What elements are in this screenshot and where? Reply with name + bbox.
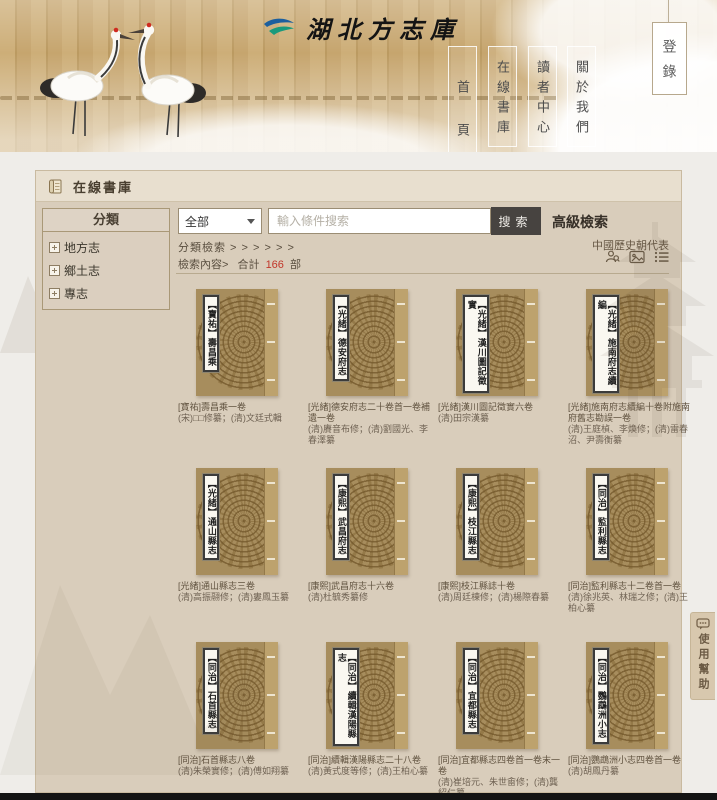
book-card[interactable]: 【同治】監利縣志 [同治]監利縣志十二卷首一卷 (清)徐兆英、林瑞之修；(清)王…: [568, 468, 696, 614]
online-library-panel: 在線書庫 分類 地方志 鄉土志 專志 全部 搜索 高級檢索 中國歷史朝代表 分類…: [35, 170, 682, 793]
binding-strip: [654, 642, 668, 749]
total-count: 166: [263, 259, 287, 271]
breadcrumb: 分類檢索 > > > > > >: [178, 239, 295, 255]
nav-reader-center[interactable]: 讀者中心: [528, 46, 557, 147]
book-authors: (清)徐兆英、林瑞之修；(清)王柏心纂: [568, 592, 696, 614]
sidebar-item-zhuanzhi[interactable]: 專志: [49, 285, 169, 302]
book-authors: (清)胡鳳丹纂: [568, 766, 696, 777]
sidebar-item-xiangtuzhi[interactable]: 鄉土志: [49, 262, 169, 279]
book-title[interactable]: [同治]宜都縣志四卷首一卷末一卷: [438, 755, 566, 777]
book-authors: (清)朱榮實修；(清)傅如翔纂: [178, 766, 306, 777]
book-authors: (清)周廷棟修；(清)楊際春纂: [438, 592, 566, 603]
sidebar-item-label: 專志: [64, 285, 88, 302]
book-cover[interactable]: 【同治】石首縣志: [196, 642, 278, 749]
result-prefix: 檢索內容>: [178, 259, 228, 271]
binding-strip: [524, 642, 538, 749]
book-cover[interactable]: 【同治】續輯漢陽縣志: [326, 642, 408, 749]
book-card[interactable]: 【光緒】施南府志續編 [光緒]施南府志續編十卷附施南府舊志勘誤一卷 (清)王庭楨…: [568, 289, 696, 446]
expand-plus-icon[interactable]: [49, 288, 60, 299]
book-spine-label: 【同治】鸚鵡洲小志: [593, 648, 609, 744]
book-spine-label: 【光緒】德安府志: [333, 295, 349, 381]
book-authors: (清)賡音布修；(清)劉國光、李春澤纂: [308, 424, 436, 446]
book-cover[interactable]: 【光緒】施南府志續編: [586, 289, 668, 396]
binding-strip: [394, 289, 408, 396]
advanced-search-link[interactable]: 高級檢索: [552, 212, 608, 232]
book-authors: (宋)□□修纂；(清)文廷式輯: [178, 413, 306, 424]
book-authors: (清)田宗漢纂: [438, 413, 566, 424]
binding-strip: [394, 642, 408, 749]
divider: [176, 273, 669, 274]
expand-plus-icon[interactable]: [49, 242, 60, 253]
book-spine-label: 【同治】宜都縣志: [463, 648, 479, 734]
book-spine-label: 【光緒】通山縣志: [203, 474, 219, 560]
total-unit: 部: [290, 259, 301, 271]
binding-strip: [654, 468, 668, 575]
book-authors: (清)高振翮修；(清)婁鳳玉纂: [178, 592, 306, 603]
book-card[interactable]: 【康熙】枝江縣志 [康熙]枝江縣誌十卷 (清)周廷棟修；(清)楊際春纂: [438, 468, 566, 603]
book-title[interactable]: [光緒]德安府志二十卷首一卷補遺一卷: [308, 402, 436, 424]
panel-title: 在線書庫: [73, 177, 133, 196]
login-hanging-line: [668, 0, 669, 22]
book-cover[interactable]: 【寶祐】壽昌乘: [196, 289, 278, 396]
sidebar-item-label: 地方志: [64, 239, 100, 256]
book-card[interactable]: 【同治】續輯漢陽縣志 [同治]續輯漢陽縣志二十八卷 (清)黃式度等修；(清)王柏…: [308, 642, 436, 777]
book-spine-label: 【寶祐】壽昌乘: [203, 295, 219, 372]
binding-strip: [264, 468, 278, 575]
chevron-down-icon: [247, 219, 255, 224]
book-card[interactable]: 【同治】宜都縣志 [同治]宜都縣志四卷首一卷末一卷 (清)崔培元、朱世畬修；(清…: [438, 642, 566, 799]
binding-strip: [394, 468, 408, 575]
book-card[interactable]: 【光緒】通山縣志 [光緒]通山縣志三卷 (清)高振翮修；(清)婁鳳玉纂: [178, 468, 306, 603]
book-cover[interactable]: 【同治】監利縣志: [586, 468, 668, 575]
nav-home[interactable]: 首頁: [448, 46, 477, 152]
sidebar-item-label: 鄉土志: [64, 262, 100, 279]
nav-about-us[interactable]: 關於我們: [567, 46, 596, 147]
site-title: 湖北方志庫: [306, 10, 461, 45]
book-spine-label: 【同治】續輯漢陽縣志: [333, 648, 359, 746]
nav-online-library[interactable]: 在線書庫: [488, 46, 517, 147]
view-options: [605, 249, 669, 264]
book-cover[interactable]: 【光緒】德安府志: [326, 289, 408, 396]
login-button[interactable]: 登錄: [652, 22, 687, 95]
book-authors: (清)杜毓秀纂修: [308, 592, 436, 603]
book-spine-label: 【同治】石首縣志: [203, 648, 219, 734]
footer-bar: [0, 793, 717, 800]
site-header: 湖北方志庫 首頁 在線書庫 讀者中心 關於我們 登錄: [0, 0, 717, 152]
binding-strip: [264, 289, 278, 396]
search-button[interactable]: 搜索: [491, 207, 541, 235]
help-button-label: 使用幫助: [695, 633, 711, 693]
book-title[interactable]: [光緒]通山縣志三卷: [178, 581, 306, 592]
book-title[interactable]: [光緒]漢川圖記徵實六卷: [438, 402, 566, 413]
sidebar-item-difangzhi[interactable]: 地方志: [49, 239, 169, 256]
book-title[interactable]: [康熙]枝江縣誌十卷: [438, 581, 566, 592]
book-title[interactable]: [寶祐]壽昌乘一卷: [178, 402, 306, 413]
chat-help-icon: [696, 618, 710, 630]
book-cover[interactable]: 【光緒】漢川圖記徵實: [456, 289, 538, 396]
book-card[interactable]: 【同治】鸚鵡洲小志 [同治]鸚鵡洲小志四卷首一卷 (清)胡鳳丹纂: [568, 642, 696, 777]
binding-strip: [524, 289, 538, 396]
panel-header: 在線書庫: [36, 171, 681, 202]
category-select-value: 全部: [185, 213, 209, 230]
book-spine-label: 【康熙】枝江縣志: [463, 474, 479, 560]
category-sidebar-title: 分類: [43, 209, 169, 232]
category-select[interactable]: 全部: [178, 208, 262, 234]
book-cover[interactable]: 【康熙】武昌府志: [326, 468, 408, 575]
expand-plus-icon[interactable]: [49, 265, 60, 276]
scroll-icon: [48, 179, 64, 194]
book-cover[interactable]: 【同治】鸚鵡洲小志: [586, 642, 668, 749]
book-card[interactable]: 【寶祐】壽昌乘 [寶祐]壽昌乘一卷 (宋)□□修纂；(清)文廷式輯: [178, 289, 306, 424]
binding-strip: [524, 468, 538, 575]
book-cover[interactable]: 【同治】宜都縣志: [456, 642, 538, 749]
book-spine-label: 【光緒】漢川圖記徵實: [463, 295, 489, 393]
cranes-illustration: [18, 4, 243, 149]
book-title[interactable]: [同治]鸚鵡洲小志四卷首一卷: [568, 755, 696, 766]
book-cover[interactable]: 【光緒】通山縣志: [196, 468, 278, 575]
book-card[interactable]: 【光緒】德安府志 [光緒]德安府志二十卷首一卷補遺一卷 (清)賡音布修；(清)劉…: [308, 289, 436, 446]
help-button[interactable]: 使用幫助: [690, 612, 715, 700]
logo-icon: [262, 15, 296, 41]
list-view-icon[interactable]: [654, 250, 669, 264]
book-title[interactable]: [同治]監利縣志十二卷首一卷: [568, 581, 696, 592]
book-spine-label: 【康熙】武昌府志: [333, 474, 349, 560]
book-title[interactable]: [康熙]武昌府志十六卷: [308, 581, 436, 592]
site-logo[interactable]: 湖北方志庫: [262, 10, 461, 45]
book-authors: (清)王庭楨、李煥修；(清)雷春沼、尹壽衡纂: [568, 424, 696, 446]
search-input[interactable]: [268, 208, 491, 234]
total-label: 合計: [238, 259, 260, 271]
book-title[interactable]: [同治]續輯漢陽縣志二十八卷: [308, 755, 436, 766]
book-spine-label: 【同治】監利縣志: [593, 474, 609, 560]
book-card[interactable]: 【康熙】武昌府志 [康熙]武昌府志十六卷 (清)杜毓秀纂修: [308, 468, 436, 603]
book-cover[interactable]: 【康熙】枝江縣志: [456, 468, 538, 575]
image-view-icon[interactable]: [629, 250, 645, 264]
book-card[interactable]: 【同治】石首縣志 [同治]石首縣志八卷 (清)朱榮實修；(清)傅如翔纂: [178, 642, 306, 777]
binding-strip: [654, 289, 668, 396]
book-authors: (清)黃式度等修；(清)王柏心纂: [308, 766, 436, 777]
book-card[interactable]: 【光緒】漢川圖記徵實 [光緒]漢川圖記徵實六卷 (清)田宗漢纂: [438, 289, 566, 424]
category-sidebar: 分類 地方志 鄉土志 專志: [42, 208, 170, 310]
book-title[interactable]: [同治]石首縣志八卷: [178, 755, 306, 766]
binding-strip: [264, 642, 278, 749]
book-title[interactable]: [光緒]施南府志續編十卷附施南府舊志勘誤一卷: [568, 402, 696, 424]
book-spine-label: 【光緒】施南府志續編: [593, 295, 619, 393]
person-search-icon[interactable]: [605, 249, 620, 264]
result-summary: 檢索內容> 合計 166 部: [178, 256, 301, 272]
